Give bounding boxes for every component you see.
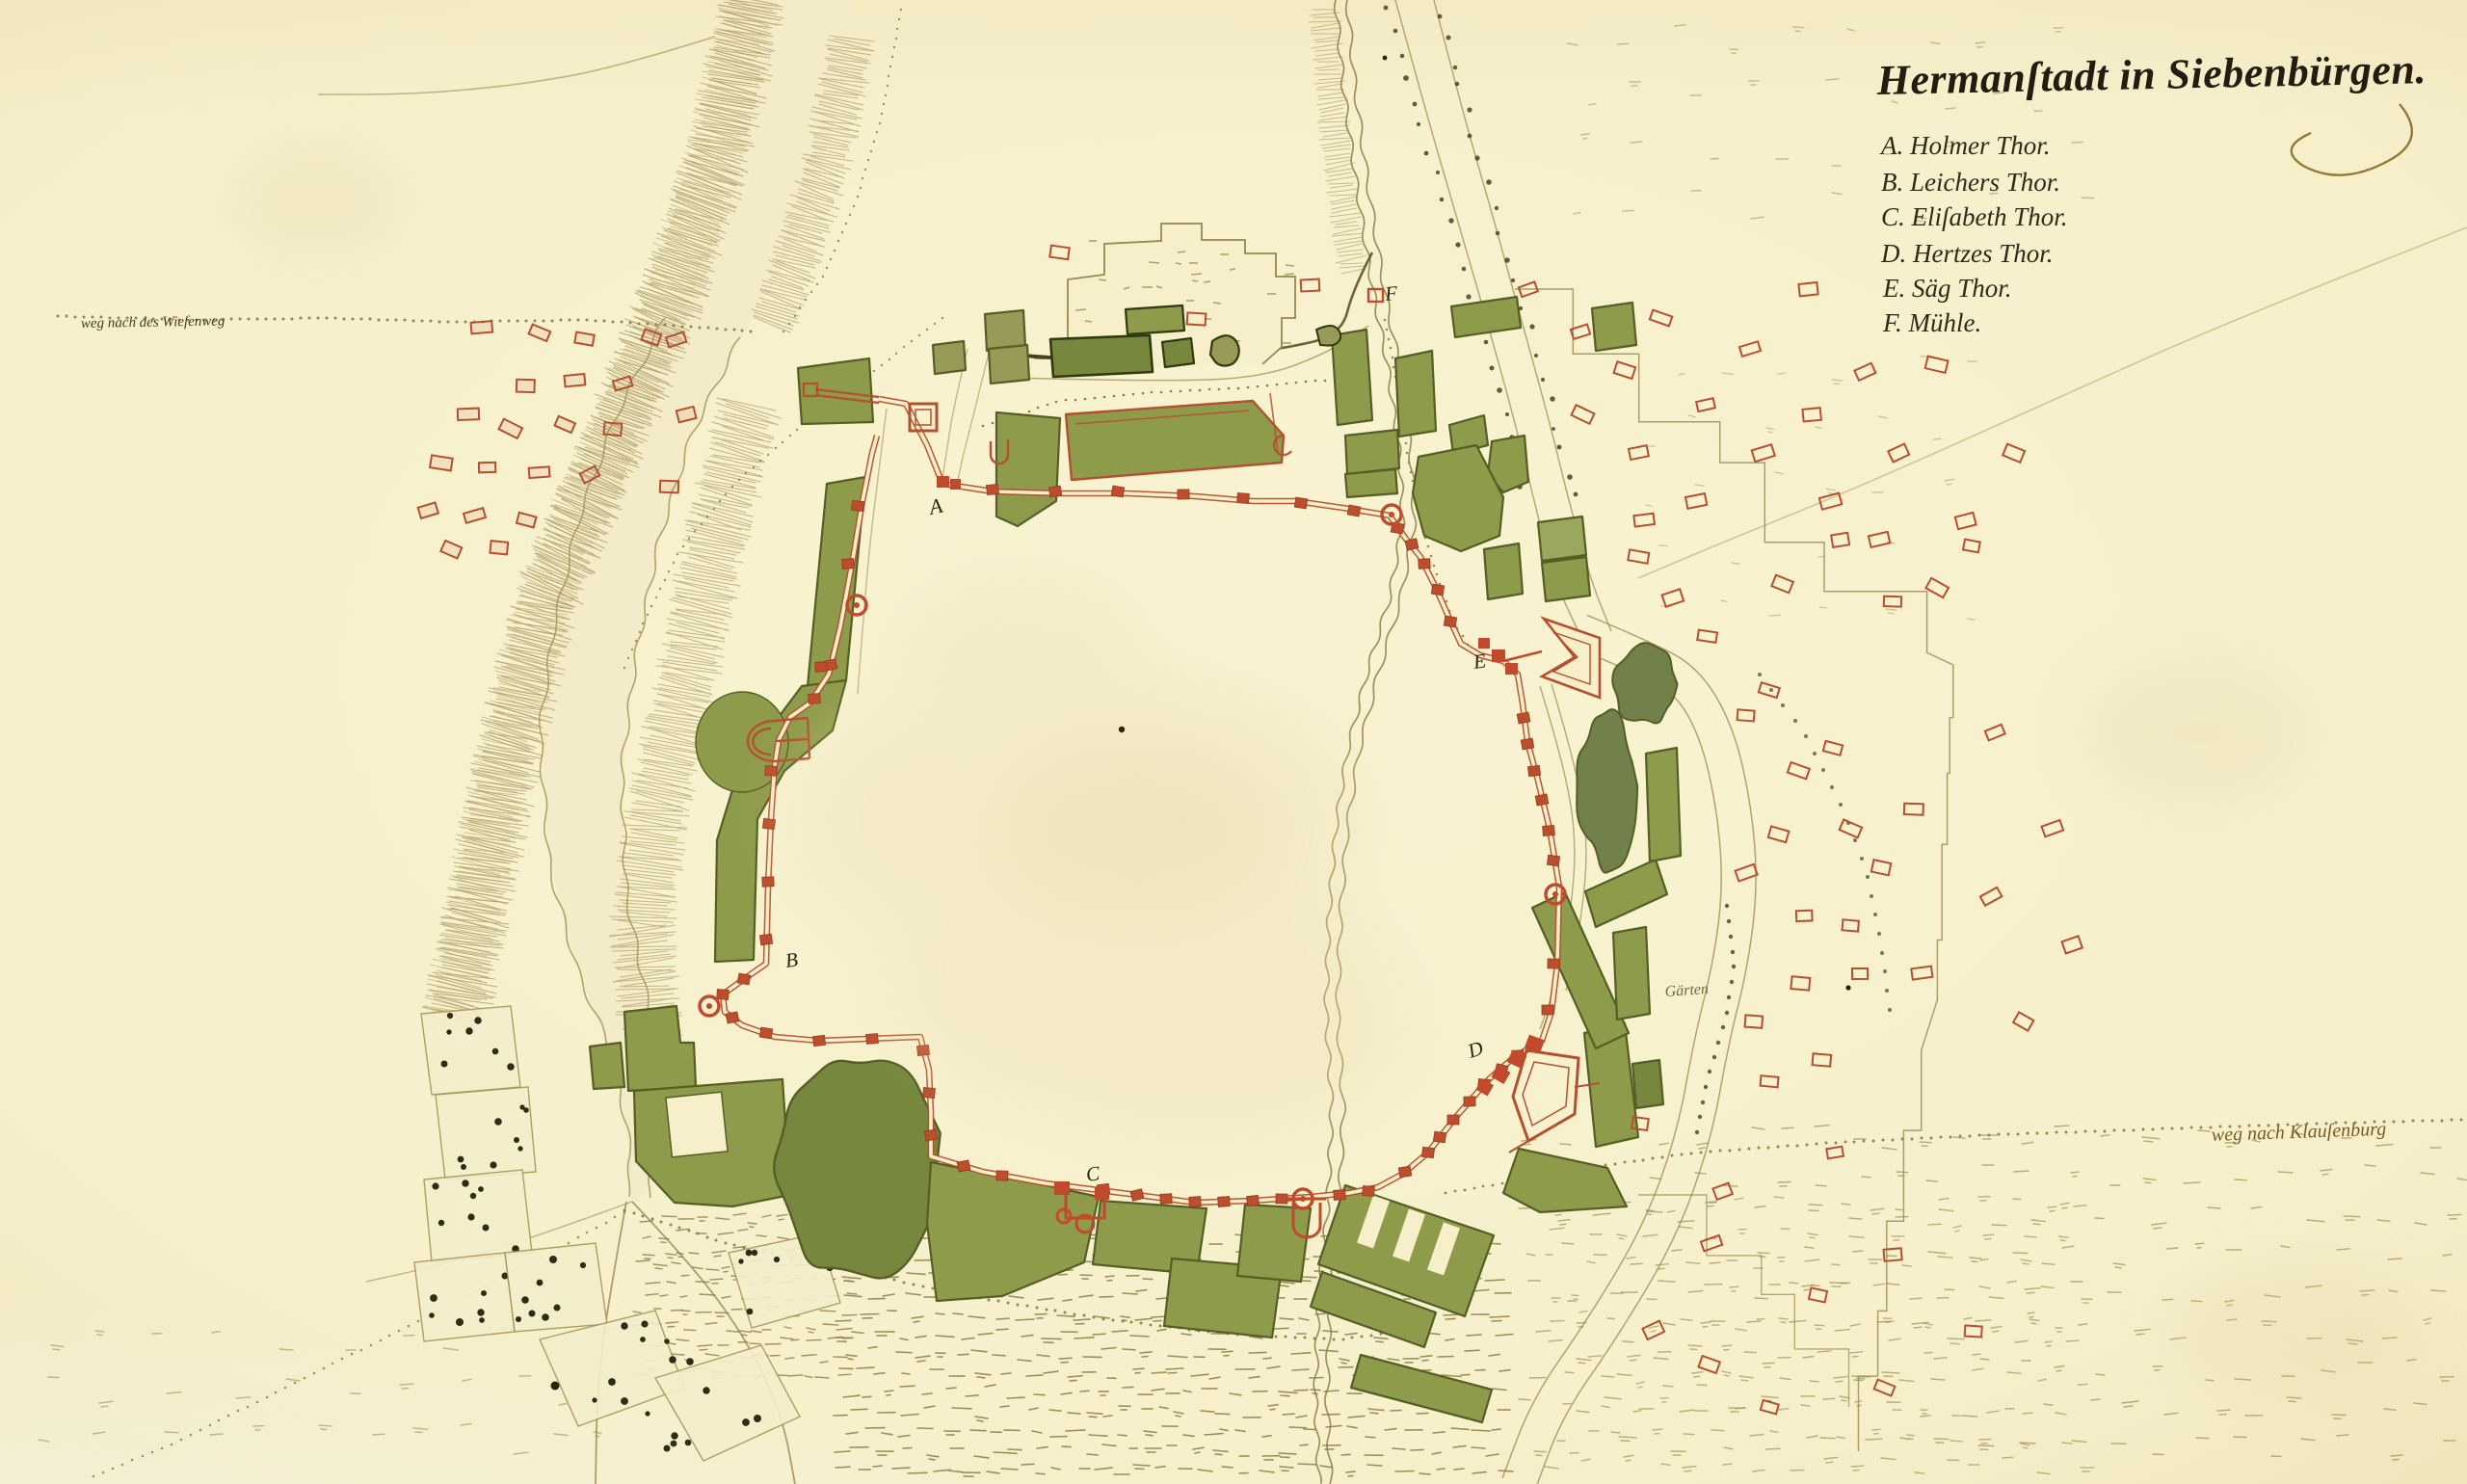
svg-text:E. Säg Thor.: E. Säg Thor. — [1882, 274, 2012, 303]
svg-text:F: F — [1383, 281, 1398, 305]
svg-text:A. Holmer Thor.: A. Holmer Thor. — [1879, 131, 2051, 160]
svg-text:B. Leichers Thor.: B. Leichers Thor. — [1881, 168, 2060, 197]
svg-text:D. Hertzes Thor.: D. Hertzes Thor. — [1880, 239, 2054, 268]
svg-text:C. Eliſabeth Thor.: C. Eliſabeth Thor. — [1881, 202, 2068, 231]
svg-text:weg nach des Wieſenweg: weg nach des Wieſenweg — [81, 313, 225, 331]
svg-text:Gärten: Gärten — [1664, 981, 1709, 1000]
svg-text:F. Mühle.: F. Mühle. — [1882, 308, 1981, 337]
